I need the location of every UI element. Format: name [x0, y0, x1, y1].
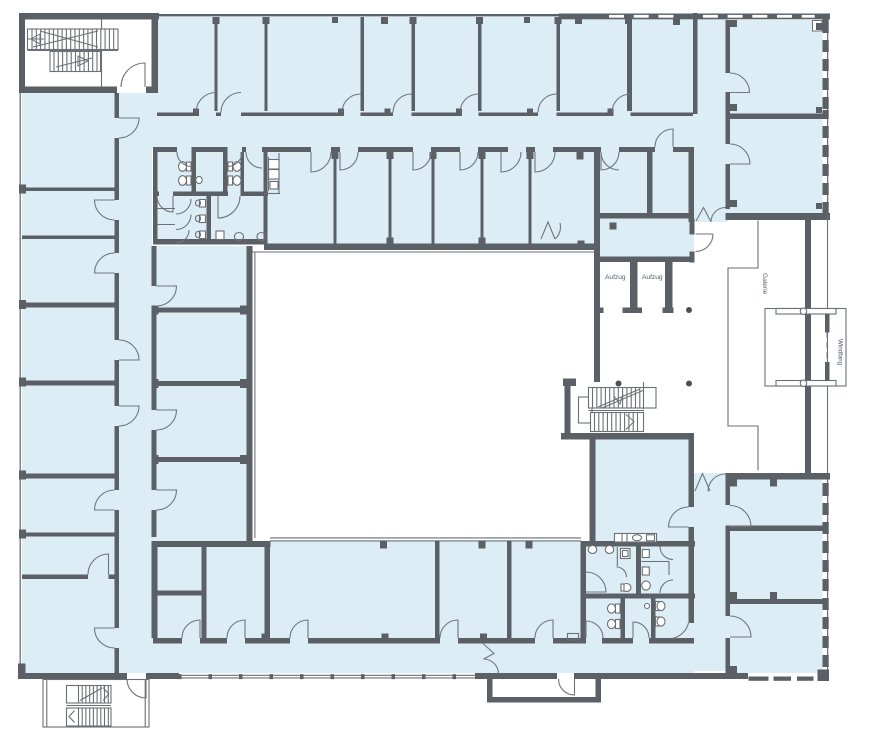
svg-text:Windfang: Windfang — [837, 339, 844, 366]
svg-text:Aufzug: Aufzug — [605, 274, 626, 281]
svg-text:Aufzug: Aufzug — [642, 274, 663, 281]
svg-text:Galerie: Galerie — [761, 273, 768, 295]
